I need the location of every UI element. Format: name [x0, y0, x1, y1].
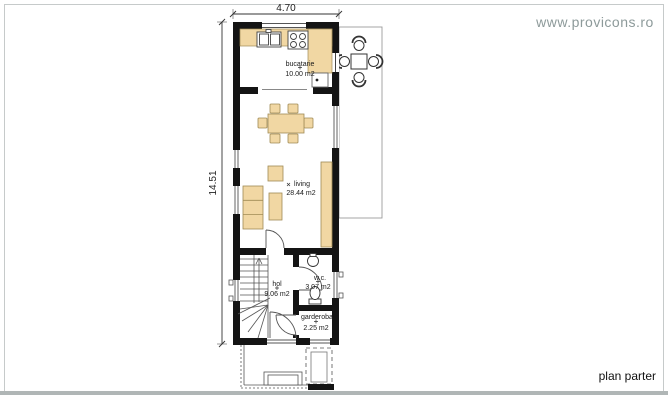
front-door-swing: [270, 312, 296, 338]
plan-title: plan parter: [599, 369, 656, 383]
patio-table: [351, 54, 367, 69]
dimension-top: 4.70: [230, 3, 342, 19]
porch-pillar: [308, 384, 334, 390]
wc: w.c. 3.07 m2: [305, 254, 330, 305]
floor-plan-svg: www.provicons.ro plan parter: [0, 0, 668, 400]
wc-sink: [308, 254, 319, 267]
dining-chair: [288, 134, 298, 143]
front-door-opening: [267, 338, 296, 345]
armchair: [269, 193, 282, 220]
living-door-opening: [266, 248, 284, 255]
sofa: [243, 186, 263, 229]
wardrobe-label: garderoba: [301, 314, 333, 321]
wardrobe: garderoba 2.25 m2: [301, 314, 333, 332]
floor-plan-page: www.provicons.ro plan parter: [0, 0, 668, 400]
living-window-left-a: [233, 150, 240, 168]
hall-window: [229, 280, 240, 301]
tv-cabinet: [321, 162, 332, 247]
patio-chair-top: [354, 41, 364, 51]
entrance-step: [264, 372, 302, 385]
wardrobe-door-opening: [293, 315, 299, 335]
porch: [241, 345, 334, 390]
hallway: hol 9.06 m2: [238, 255, 290, 338]
living-area: 28.44 m2: [286, 190, 315, 197]
armchair: [268, 166, 283, 181]
wall-kitchen-living-left: [233, 87, 258, 94]
wall-kitchen-living-right: [313, 87, 332, 94]
stove: [288, 31, 308, 49]
kitchen-terrace-door: [332, 53, 339, 72]
living-room: living 28.44 m2: [243, 104, 332, 247]
wardrobe-window: [310, 338, 330, 345]
wc-window: [332, 272, 343, 298]
wc-door-opening: [293, 267, 299, 290]
dimension-left: 14.51: [208, 19, 227, 347]
living-window-right: [332, 106, 339, 148]
website-watermark: www.provicons.ro: [535, 14, 654, 30]
living-level-mark: [287, 183, 290, 186]
stair-winders: [240, 305, 268, 338]
terrace: [336, 27, 383, 218]
dimension-height-value: 14.51: [208, 170, 219, 195]
wardrobe-area: 2.25 m2: [303, 325, 328, 332]
patio-chair-left: [340, 57, 350, 67]
kitchen-area: 10.00 m2: [285, 71, 314, 78]
wall-wc-wardrobe: [293, 305, 339, 311]
patio-chair-right: [369, 57, 379, 67]
dining-chair: [270, 134, 280, 143]
kitchen-window: [262, 22, 306, 29]
dining-chair: [288, 104, 298, 113]
dimension-width-value: 4.70: [276, 3, 296, 14]
patio-table-set: [336, 37, 383, 87]
kitchen: bucatarie 10.00 m2: [240, 29, 332, 87]
kitchen-sink: [257, 30, 281, 48]
dining-chair: [304, 118, 313, 128]
patio-chair-bottom: [354, 73, 364, 83]
wc-area: 3.07 m2: [305, 284, 330, 291]
wall-living-hall: [233, 248, 339, 255]
wc-label: w.c.: [313, 275, 326, 282]
living-window-left-b: [233, 186, 240, 214]
sofa-set: [243, 166, 283, 229]
hall-area: 9.06 m2: [264, 291, 289, 298]
dining-chair: [258, 118, 267, 128]
dining-chair: [270, 104, 280, 113]
dining-set: [258, 104, 313, 143]
living-door-swing: [266, 230, 284, 248]
living-label: living: [294, 181, 310, 188]
porch-canopy: [306, 348, 332, 384]
dining-table: [268, 114, 304, 133]
